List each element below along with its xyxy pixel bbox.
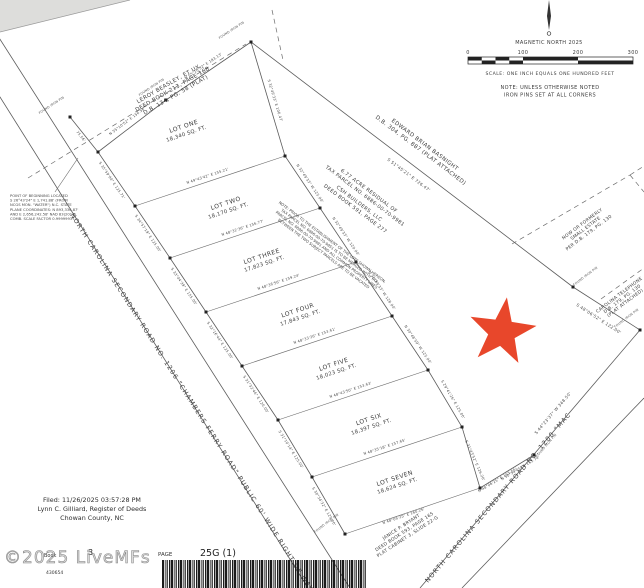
bearing-label: S 34°57'19" E 125.00' — [134, 214, 162, 253]
lot-2-label: LOT TWO18,170 SQ. FT. — [205, 194, 249, 221]
bearing-label: S 33°04'39" E 155.00' — [170, 267, 198, 306]
bearing-label: N 32°49'33" W 125.00' — [295, 163, 324, 203]
plat-map-page: MAGNETIC NORTH 2025 0 100 200 300 SCALE:… — [0, 0, 644, 588]
barcode — [162, 560, 366, 588]
distance-label: 75.56' — [75, 130, 86, 142]
boundary-lines — [70, 42, 640, 534]
scale-tick-100: 100 — [518, 50, 529, 56]
bearing-label: N 48°33'26" E 153.61' — [293, 327, 336, 345]
bearing-label: N 30°48'59" W 125.00' — [403, 324, 432, 364]
north-arrow — [547, 0, 551, 35]
filed-line: Filed: 11/26/2025 03:57:28 PM — [43, 496, 141, 504]
scale-caption: SCALE: ONE INCH EQUALS ONE HUNDRED FEET — [485, 71, 614, 77]
plat-map-canvas: MAGNETIC NORTH 2025 0 100 200 300 SCALE:… — [0, 0, 644, 588]
svg-text:NCGS MON. "WATER") N.C. STATE: NCGS MON. "WATER") N.C. STATE — [10, 203, 72, 207]
svg-text:COMB. SCALE FACTOR 0.99999937: COMB. SCALE FACTOR 0.99999937 — [10, 217, 75, 221]
svg-text:AND E 2,656,242.58' NAD 83(201: AND E 2,656,242.58' NAD 83(2011). — [10, 212, 77, 216]
bearing-label: N 48°43'50" E 153.63' — [329, 381, 372, 399]
svg-text:S 26°43'24" E 1,741.88' (FROM: S 26°43'24" E 1,741.88' (FROM — [10, 199, 68, 203]
doc-number: 430654 — [46, 570, 63, 576]
north-label: MAGNETIC NORTH 2025 — [515, 40, 583, 46]
bearing-label: S 32°16'44" E 125.00' — [206, 321, 234, 360]
scale-tick-300: 300 — [628, 50, 639, 56]
scale-tick-200: 200 — [573, 50, 584, 56]
bearing-label: S 35°59'00" E 125.71' — [98, 161, 126, 200]
bearing-label: S 31°10'14" E 125.00' — [278, 430, 305, 469]
lot-6-label: LOT SIX18,397 SQ. FT. — [348, 410, 392, 437]
lot-4-label: LOT FOUR17,843 SQ. FT. — [277, 301, 321, 328]
svg-text:POINT OF BEGINNING LOCATED: POINT OF BEGINNING LOCATED — [10, 194, 68, 198]
lot-5-label: LOT FIVE18,023 SQ. FT. — [313, 355, 357, 382]
bearing-label: N 48°36'56" E 159.24' — [257, 273, 300, 291]
found-iron-pin-label: FOUND IRON PIN — [572, 265, 598, 286]
lot-3-label: LOT THREE17,823 SQ. FT. — [241, 247, 285, 274]
bearing-label: N 48°35'18" E 157.65' — [363, 438, 406, 456]
lot-1-label: LOT ONE18,340 SQ. FT. — [163, 117, 207, 144]
corner-note-line2: IRON PINS SET AT ALL CORNERS — [504, 93, 596, 99]
iron-pin-markers — [69, 41, 642, 536]
scale-bar: 0 100 200 300 — [466, 50, 638, 64]
bearing-label: S 29°41'26" E 125.00' — [440, 379, 465, 419]
bearing-label: S 31°43'52" E 126.26' — [464, 440, 486, 482]
scale-tick-0: 0 — [466, 50, 470, 56]
svg-text:PLANE COORDINATES: N 893,336.8: PLANE COORDINATES: N 893,336.87' — [10, 208, 78, 212]
lot-7-label: LOT SEVEN18,624 SQ. FT. — [374, 469, 418, 496]
svg-text:D.B. 304, PG. 887 (PLAT ATTACH: D.B. 304, PG. 887 (PLAT ATTACHED) — [374, 115, 467, 187]
found-iron-pin-label: FOUND IRON PIN — [218, 20, 245, 40]
filing-stamp: Filed: 11/26/2025 03:57:28 PM Lynn C. Gi… — [38, 496, 147, 522]
residual-parcel-label: 6.77 ACRE RESIDUAL OF TAX PARCEL NO. 688… — [313, 159, 409, 241]
bearing-label: S 31°32'46" E 120.00' — [242, 375, 269, 414]
page-label: PAGE — [158, 552, 173, 558]
road-1-label: NORTH CAROLINA SECONDARY ROAD NO. 1206 "… — [68, 212, 315, 588]
basnight-parcel-label: EDWARD BRIAN BASNIGHT D.B. 304, PG. 887 … — [374, 109, 471, 187]
carolina-telephone-parcel-label: CAROLINA TELEPHONE D.B. 179, PG. 130 (PL… — [595, 276, 644, 323]
bearing-label: N 49°43'42" E 155.21' — [186, 167, 229, 185]
star-marker[interactable] — [471, 297, 537, 363]
county-line: Chowan County, NC — [60, 514, 124, 522]
register-line: Lynn C. Gilliard, Register of Deeds — [38, 505, 147, 513]
bearing-label: N 48°32'36" E 156.77' — [221, 219, 264, 237]
corner-note-line1: NOTE: UNLESS OTHERWISE NOTED — [501, 85, 600, 91]
watermark: ©2025 LiveMFs — [4, 548, 151, 568]
page-number: 25G (1) — [200, 548, 236, 559]
bearing-label: S 32°49'33" E 106.47' — [267, 79, 284, 122]
